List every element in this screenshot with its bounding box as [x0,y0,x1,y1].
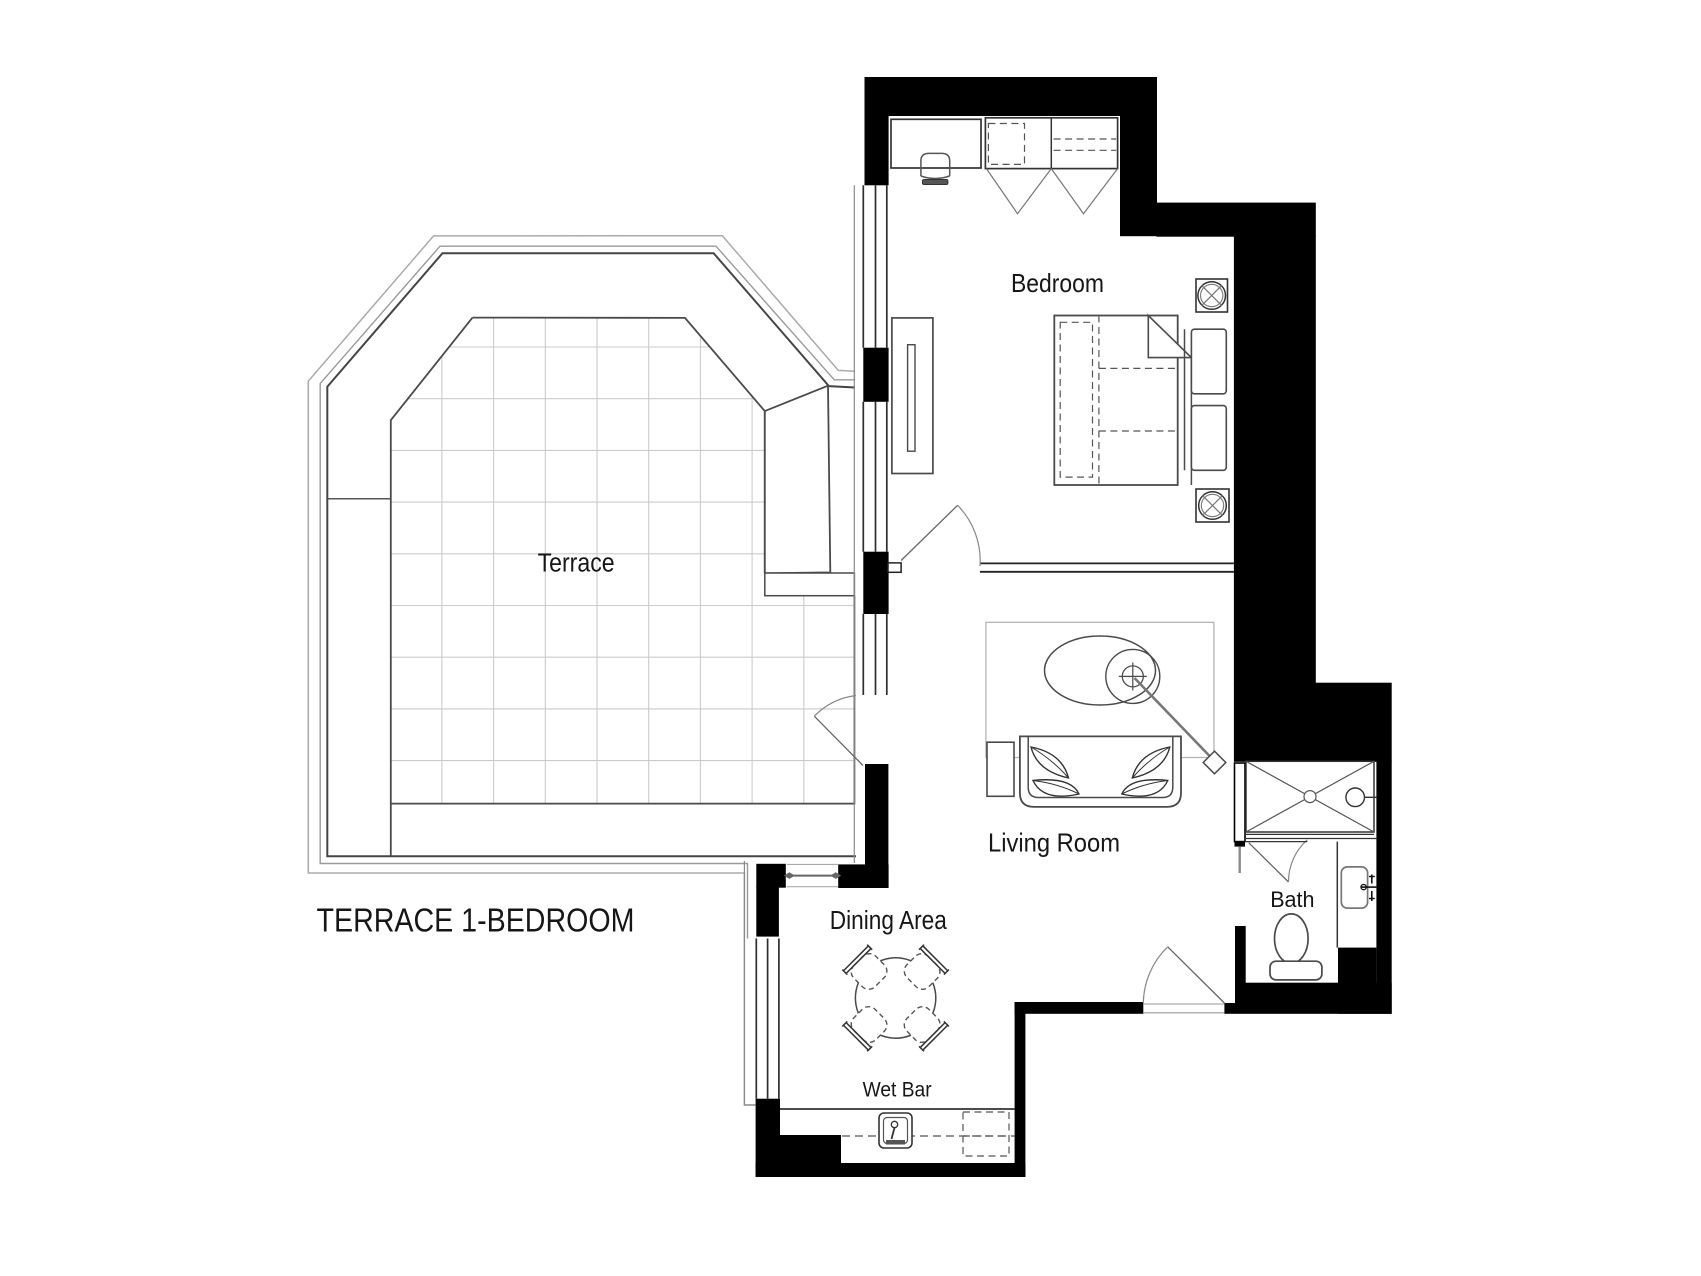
svg-text:Bedroom: Bedroom [1011,268,1104,298]
svg-text:Bath: Bath [1270,887,1314,912]
svg-text:TERRACE 1-BEDROOM: TERRACE 1-BEDROOM [317,902,635,939]
svg-text:Wet Bar: Wet Bar [863,1078,932,1102]
svg-text:Terrace: Terrace [538,549,615,577]
svg-text:Dining Area: Dining Area [830,907,948,935]
svg-text:Living Room: Living Room [988,828,1120,858]
